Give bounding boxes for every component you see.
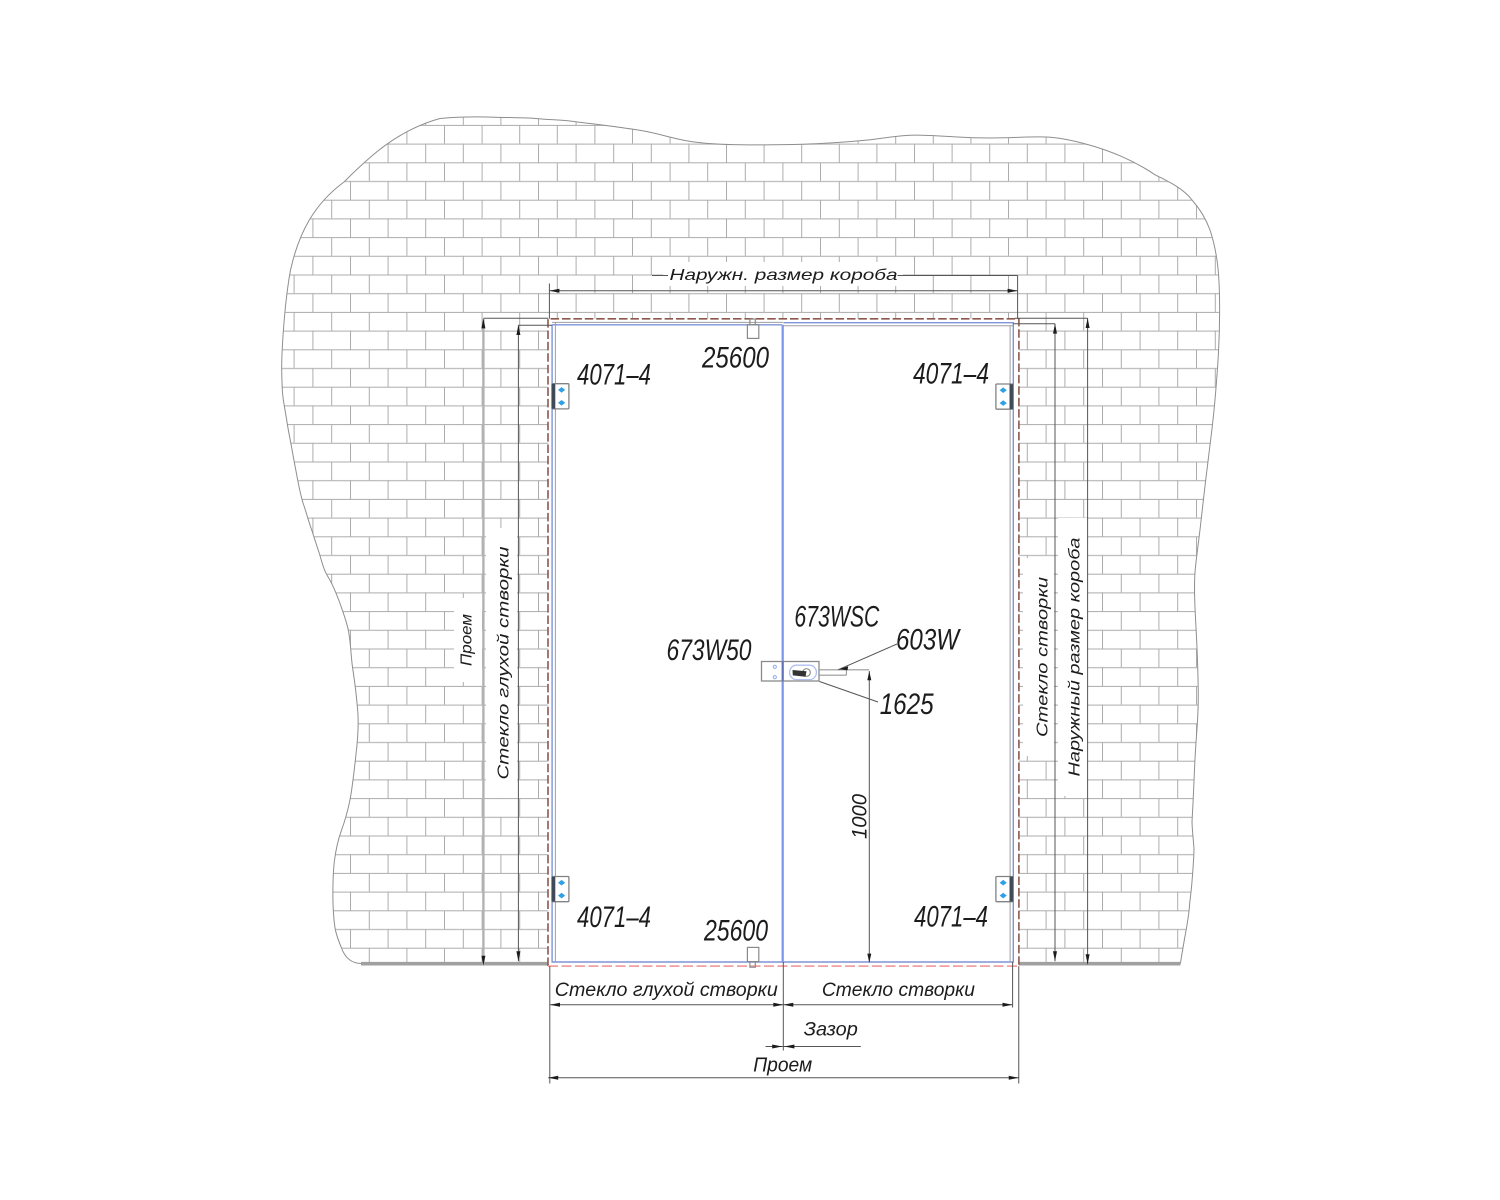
svg-text:Наружный размер короба: Наружный размер короба [1066, 537, 1083, 776]
svg-text:4071–4: 4071–4 [577, 901, 651, 934]
svg-text:Стекло створки: Стекло створки [1034, 577, 1051, 737]
svg-text:673W50: 673W50 [667, 634, 752, 667]
svg-text:673WSC: 673WSC [794, 601, 879, 634]
svg-text:Зазор: Зазор [804, 1019, 858, 1041]
svg-text:603W: 603W [896, 623, 962, 656]
svg-text:4071–4: 4071–4 [577, 358, 651, 391]
svg-text:1625: 1625 [880, 688, 934, 721]
svg-text:Стекло створки: Стекло створки [822, 979, 975, 1001]
svg-text:4071–4: 4071–4 [913, 358, 989, 391]
svg-text:4071–4: 4071–4 [914, 901, 988, 934]
svg-text:Проем: Проем [753, 1054, 812, 1076]
svg-text:25600: 25600 [701, 341, 769, 374]
svg-text:Наружн. размер короба: Наружн. размер короба [670, 267, 898, 284]
svg-text:Стекло глухой створки: Стекло глухой створки [555, 979, 778, 1001]
svg-text:25600: 25600 [703, 914, 768, 947]
svg-text:Стекло глухой створки: Стекло глухой створки [495, 546, 512, 779]
svg-text:1000: 1000 [849, 794, 872, 839]
svg-text:Проем: Проем [459, 614, 476, 666]
